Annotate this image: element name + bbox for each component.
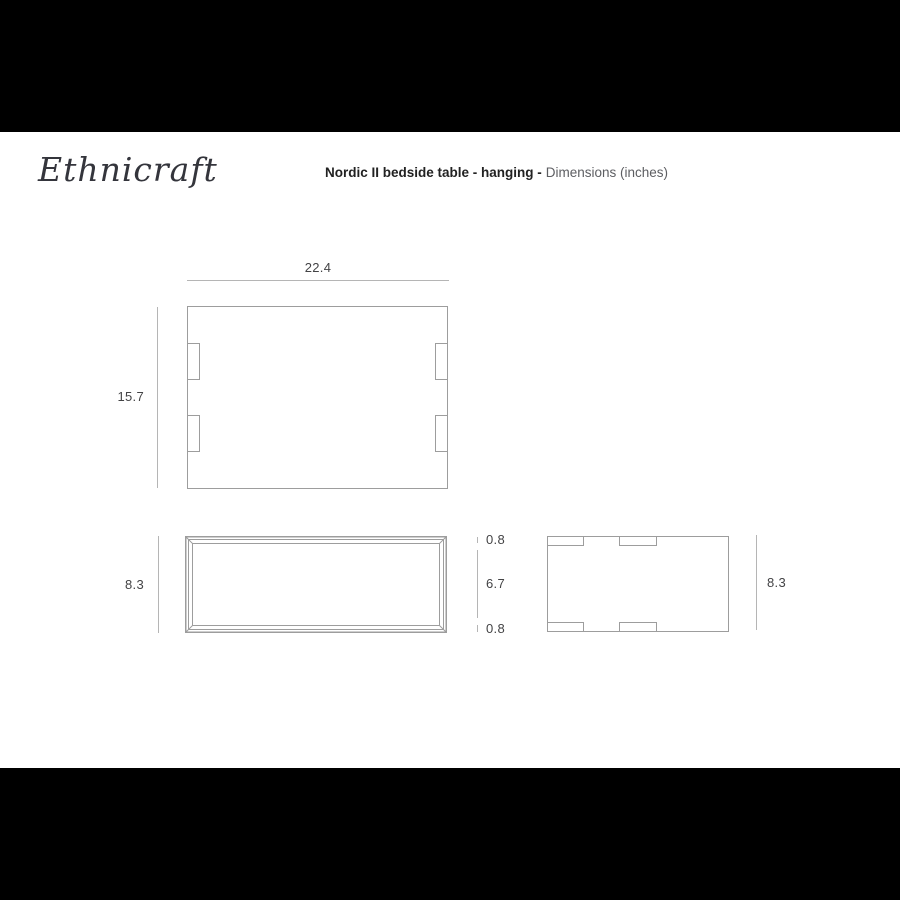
side-view-height-label: 8.3 (767, 576, 786, 590)
miter-top-right (439, 537, 446, 544)
miter-top-left (186, 537, 193, 544)
front-view-top-panel-label: 0.8 (486, 533, 505, 547)
front-frame-drawing (185, 536, 447, 633)
top-view-depth-label: 15.7 (98, 390, 144, 404)
top-view-tab-right-upper (435, 343, 448, 380)
front-view-height-label: 8.3 (98, 578, 144, 592)
miter-bottom-left (186, 625, 193, 632)
miter-bottom-right (439, 625, 446, 632)
product-name: Nordic II bedside table - hanging - (325, 165, 542, 180)
top-view-tab-left-lower (187, 415, 200, 452)
top-view-tab-right-lower (435, 415, 448, 452)
side-view-tab-top-mid (619, 536, 657, 546)
brand-logo: Ethnicraft (38, 150, 218, 189)
front-view-bottom-panel-dimension-line (477, 625, 478, 632)
front-view-top-panel-dimension-line (477, 537, 478, 543)
front-frame-outer-rect (186, 537, 447, 633)
page-title: Nordic II bedside table - hanging -Dimen… (325, 165, 668, 180)
front-frame-inner-rect (193, 544, 440, 626)
front-view-bottom-panel-label: 0.8 (486, 622, 505, 636)
front-view-opening-label: 6.7 (486, 577, 505, 591)
side-view-tab-bottom-mid (619, 622, 657, 632)
side-view-tab-bottom-left (547, 622, 584, 632)
top-view-depth-dimension-line (157, 307, 158, 488)
front-frame-mid-rect (189, 540, 444, 630)
top-view-tab-left-upper (187, 343, 200, 380)
front-view-height-dimension-line (158, 536, 159, 633)
side-view-tab-top-left (547, 536, 584, 546)
top-view-panel-outline (187, 306, 448, 489)
dimensions-subtitle: Dimensions (inches) (546, 165, 668, 180)
side-view-panel-outline (547, 536, 729, 632)
top-view-width-label: 22.4 (187, 261, 449, 275)
drawing-sheet: Ethnicraft Nordic II bedside table - han… (0, 132, 900, 768)
side-view-height-dimension-line (756, 535, 757, 630)
top-view-width-dimension-line (187, 280, 449, 281)
front-view-opening-dimension-line (477, 550, 478, 618)
